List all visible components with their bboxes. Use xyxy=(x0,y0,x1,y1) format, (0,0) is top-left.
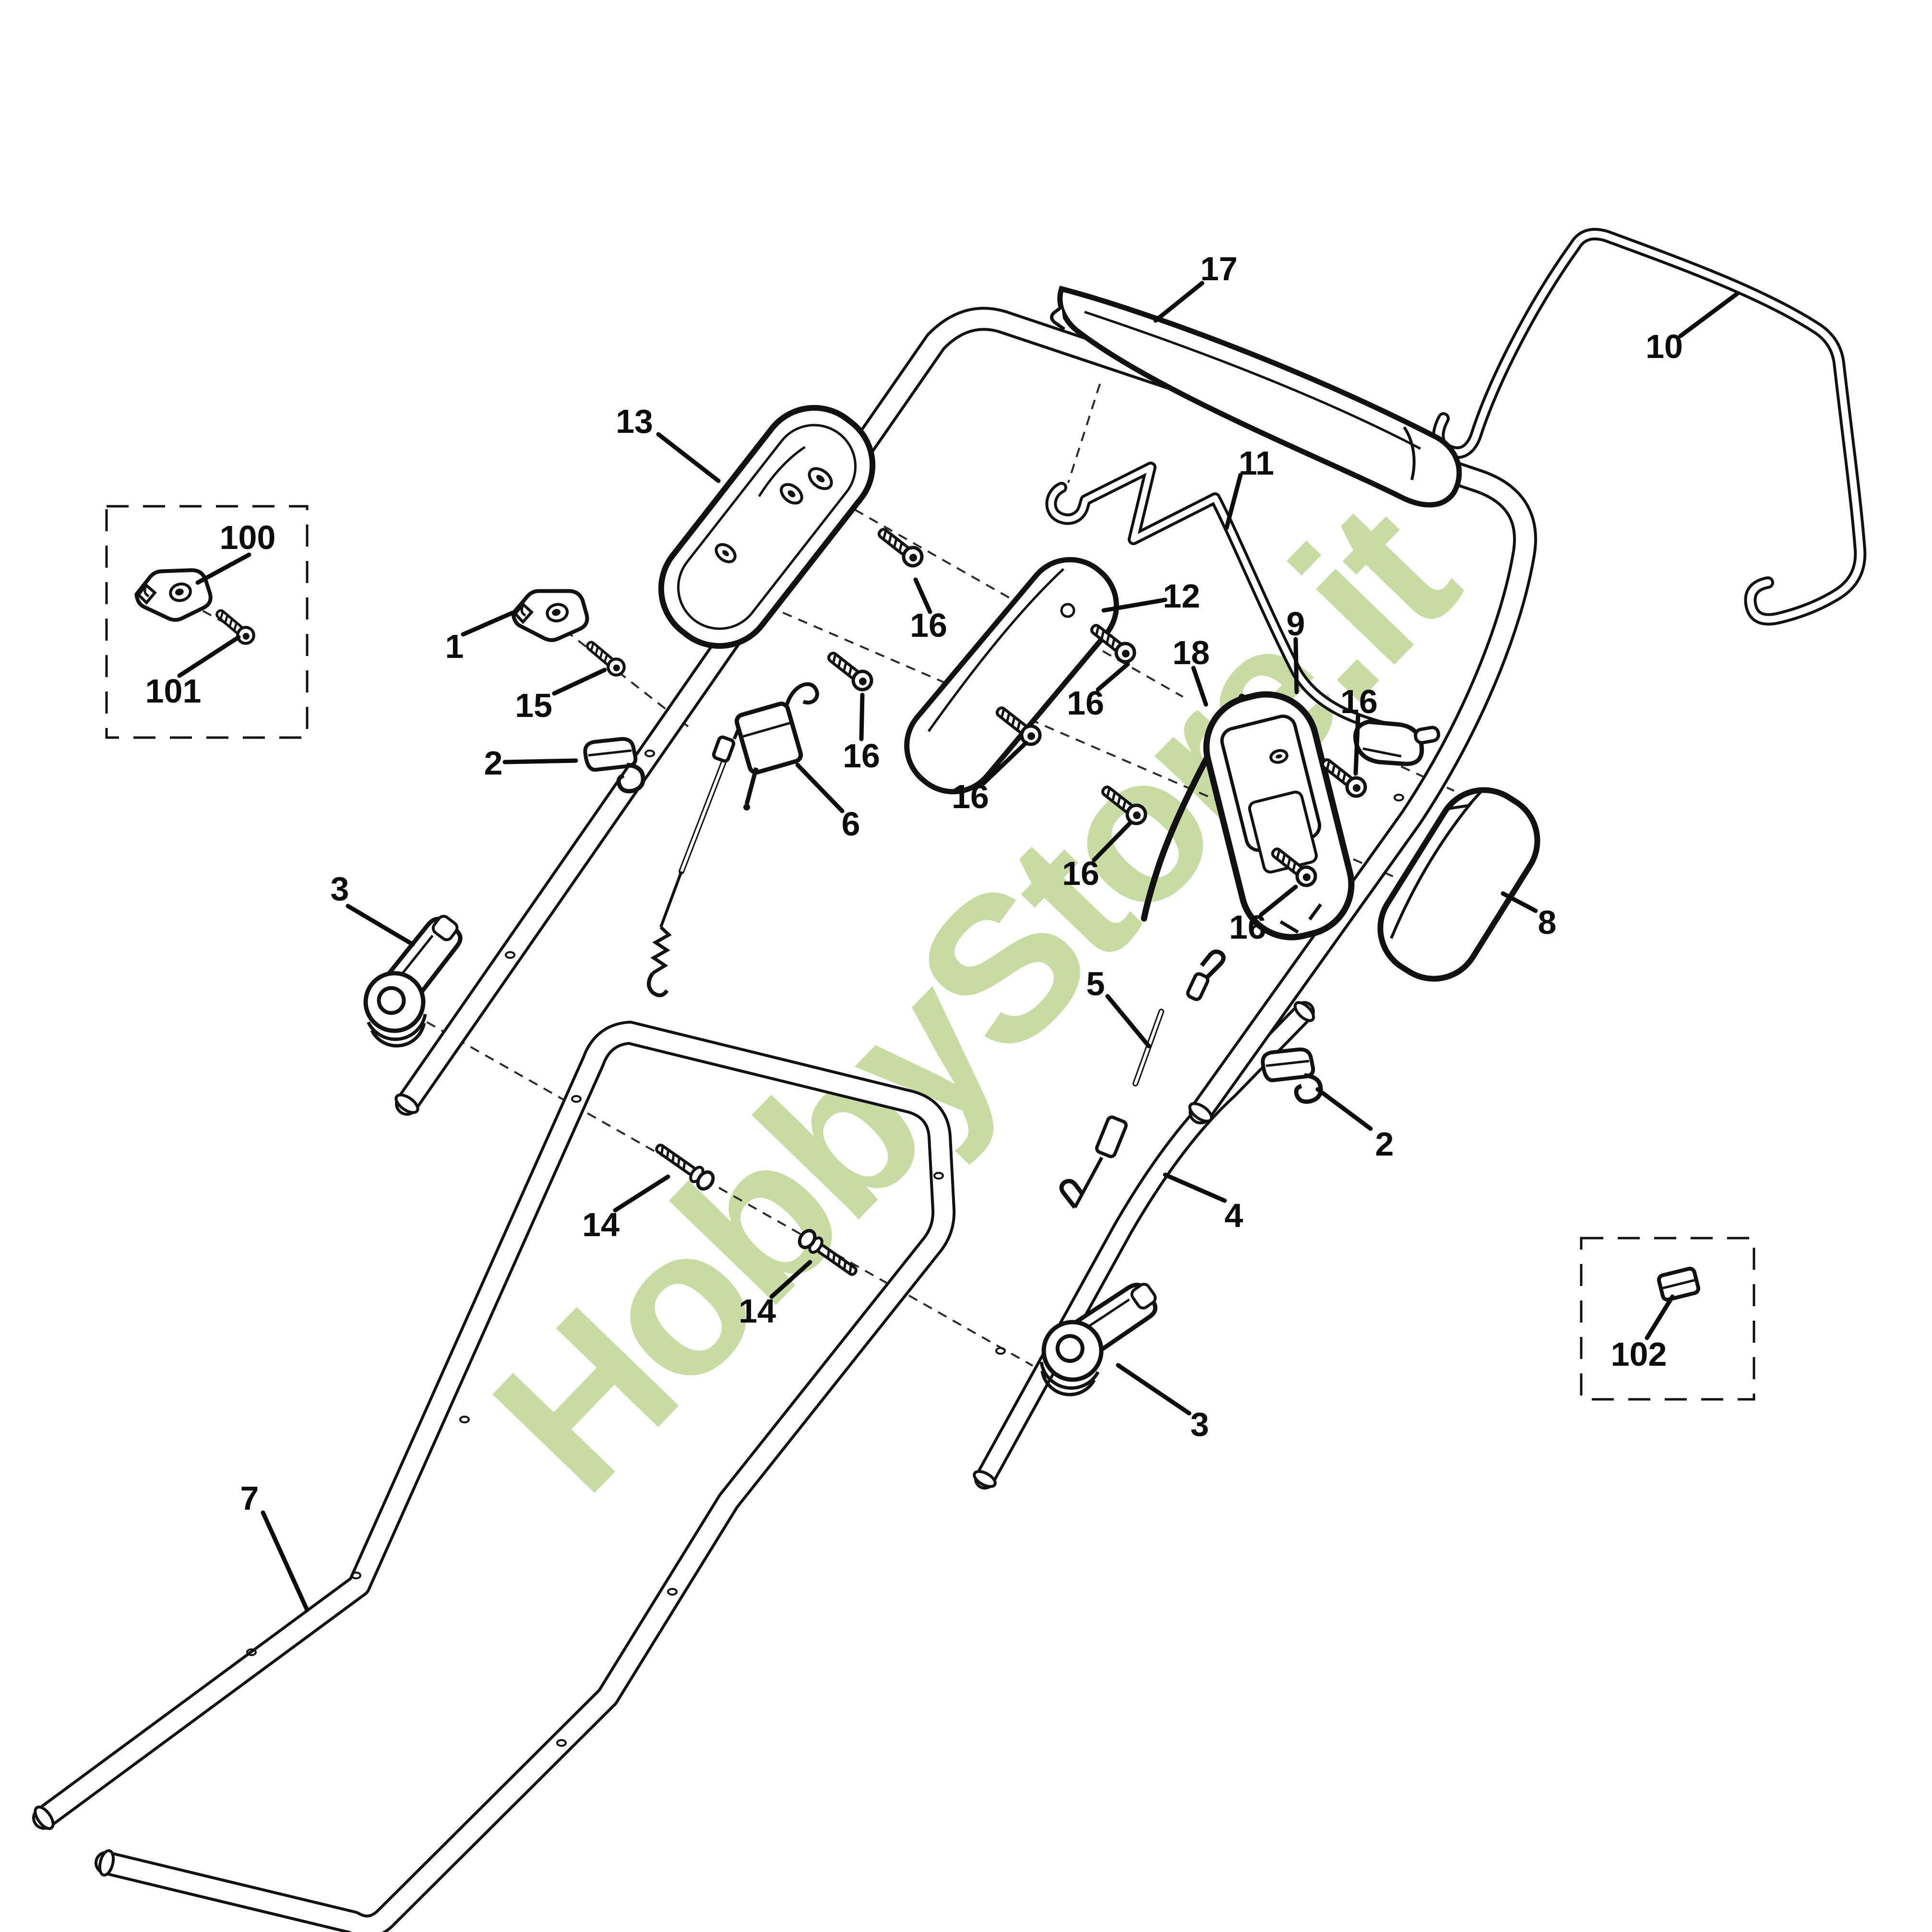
leader-line-6 xyxy=(798,765,842,811)
leader-line-4 xyxy=(1165,1175,1225,1201)
part-label-11: 11 xyxy=(1239,444,1274,482)
leader-line-11 xyxy=(1227,475,1240,528)
part-label-16-a: 16 xyxy=(910,607,947,644)
leader-line-3-left xyxy=(348,906,413,944)
cable-clip-right xyxy=(1263,1049,1321,1102)
watermark-text: HobbyStore.it xyxy=(451,461,1499,1534)
kit-box-102 xyxy=(1581,1238,1754,1399)
part-label-16-g: 16 xyxy=(1340,683,1378,720)
part-label-17: 17 xyxy=(1200,250,1238,287)
part-label-16-e: 16 xyxy=(1062,855,1099,892)
part-label-10: 10 xyxy=(1646,328,1683,365)
watermark: HobbyStore.it xyxy=(451,461,1499,1534)
screw-16-2 xyxy=(824,648,875,693)
leader-line-17 xyxy=(1156,283,1202,321)
part-label-4: 4 xyxy=(1225,1197,1243,1234)
part-label-3-left: 3 xyxy=(331,870,349,907)
kit-clip-102 xyxy=(1658,1268,1699,1301)
part-label-14-a: 14 xyxy=(582,1206,620,1243)
leader-line-7 xyxy=(263,1513,307,1610)
part-label-2-left: 2 xyxy=(484,744,503,782)
leader-line-2-right xyxy=(1318,1089,1371,1129)
leader-line-15 xyxy=(554,670,605,693)
leader-line-13 xyxy=(658,434,718,481)
assembly-axis xyxy=(1068,384,1100,483)
part-label-15: 15 xyxy=(515,687,552,724)
part-label-12: 12 xyxy=(1163,577,1200,615)
part-label-3-right: 3 xyxy=(1191,1406,1209,1443)
screw-16-1 xyxy=(875,524,926,570)
part-label-1: 1 xyxy=(445,628,464,665)
part-label-13: 13 xyxy=(616,403,653,440)
leader-line-1 xyxy=(463,613,513,634)
clamp-part-100 xyxy=(132,561,214,628)
leader-line-102 xyxy=(1647,1297,1672,1338)
cover-right-outer xyxy=(1363,773,1555,996)
parts-diagram-page: HobbyStore.it xyxy=(0,0,1932,1932)
part-label-2-right: 2 xyxy=(1375,1125,1394,1163)
leader-line-2-left xyxy=(505,761,576,762)
part-label-14-b: 14 xyxy=(739,1292,776,1330)
bail-motor-stop xyxy=(1438,234,1860,620)
leader-line-10 xyxy=(1681,294,1737,336)
part-label-18: 18 xyxy=(1172,634,1210,671)
clamp-part-1 xyxy=(510,582,591,647)
leader-line-3-right xyxy=(1118,1365,1189,1413)
part-label-16-d: 16 xyxy=(952,778,989,815)
part-label-16-f: 16 xyxy=(1229,908,1266,946)
leader-line-16-g xyxy=(1356,716,1358,774)
leader-line-101 xyxy=(179,637,239,676)
screw-15 xyxy=(583,638,627,679)
part-label-101: 101 xyxy=(145,672,202,710)
part-label-16-c: 16 xyxy=(1067,684,1104,722)
kit-box-100-101 xyxy=(107,506,307,738)
part-label-6: 6 xyxy=(842,805,860,843)
part-label-8: 8 xyxy=(1538,904,1557,941)
part-label-16-b: 16 xyxy=(843,737,880,775)
part-label-102: 102 xyxy=(1611,1336,1667,1373)
part-label-100: 100 xyxy=(220,519,276,556)
cover-left xyxy=(640,386,894,668)
connector-block xyxy=(735,684,817,811)
leader-line-9 xyxy=(1296,639,1297,692)
leader-line-16-b xyxy=(861,695,862,739)
leader-line-100 xyxy=(198,555,249,583)
part-label-5: 5 xyxy=(1086,965,1105,1002)
part-label-7: 7 xyxy=(240,1479,259,1517)
part-label-9: 9 xyxy=(1287,605,1305,643)
bail-motor-stop-inner xyxy=(1438,234,1860,620)
